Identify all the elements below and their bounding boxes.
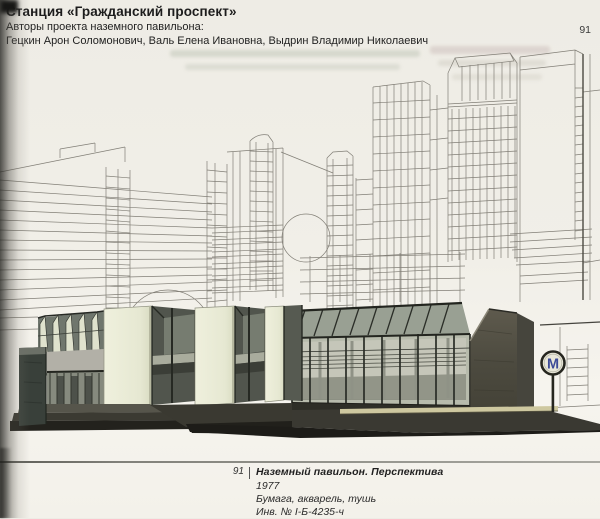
authors-label: Авторы проекта наземного павильона: xyxy=(6,20,428,34)
page-header: Станция «Гражданский проспект» Авторы пр… xyxy=(6,3,428,48)
page-number: 91 xyxy=(579,24,591,36)
caption-title: Наземный павильон. Перспектива xyxy=(256,466,443,478)
caption-year: 1977 xyxy=(256,480,443,493)
scan-corner-shadow xyxy=(0,0,18,13)
book-page: Станция «Гражданский проспект» Авторы пр… xyxy=(0,0,600,518)
metro-sign-pole xyxy=(552,373,555,412)
dark-block-left xyxy=(19,347,46,426)
artwork-perspective-drawing: М xyxy=(0,0,600,518)
caption-divider-rule xyxy=(0,461,600,463)
station-title: Станция «Гражданский проспект» xyxy=(6,3,428,20)
metro-sign: М xyxy=(542,352,565,413)
scan-corner-shadow xyxy=(0,448,12,518)
metro-letter-m: М xyxy=(547,356,559,372)
ground-platforms xyxy=(10,403,600,438)
pavilion-glazed-hall xyxy=(292,303,470,406)
caption-inventory-number: Инв. № I-Б-4235-ч xyxy=(256,506,443,519)
figure-caption: 91 Наземный павильон. Перспектива 1977 Б… xyxy=(228,466,443,519)
caption-figure-number: 91 xyxy=(228,466,249,477)
caption-medium: Бумага, акварель, тушь xyxy=(256,493,443,506)
pavilion-dark-pylon xyxy=(470,309,534,419)
pavilion-left-section xyxy=(38,305,302,408)
authors-names: Гецкин Арон Соломонович, Валь Елена Иван… xyxy=(6,34,428,48)
caption-separator xyxy=(249,467,250,479)
right-cornice-line xyxy=(540,322,600,325)
